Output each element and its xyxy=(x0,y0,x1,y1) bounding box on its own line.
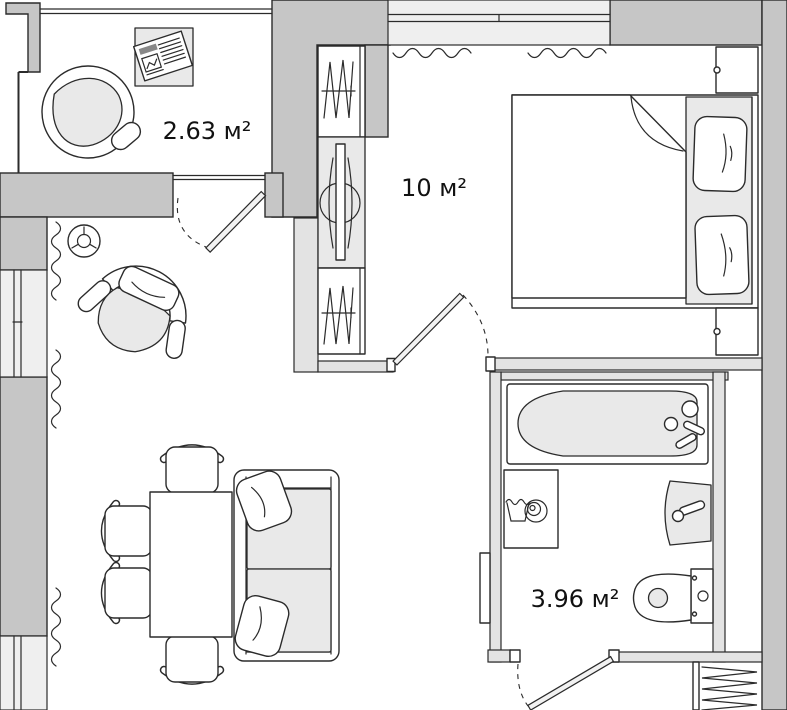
living-room-window-upper xyxy=(0,270,47,377)
wardrobe-bottom xyxy=(318,268,365,354)
wardrobe-top xyxy=(318,46,365,137)
wall-hall-bottom xyxy=(610,652,762,662)
wall-balcony-door-jamb xyxy=(265,173,283,217)
balcony: 2.63 м² xyxy=(32,28,252,168)
balcony-door xyxy=(177,192,265,253)
toilet xyxy=(634,569,714,623)
nightstand-bottom xyxy=(714,308,758,355)
washing-machine xyxy=(504,470,558,548)
bathroom: 3.96 м² xyxy=(504,384,713,623)
radiator-living-2 xyxy=(52,350,61,428)
floor-plan: 2.63 м² xyxy=(0,0,787,710)
built-in-closet xyxy=(702,667,757,710)
bathtub xyxy=(507,384,708,464)
dining-chair-top xyxy=(164,447,220,493)
bedroom-area-label: 10 м² xyxy=(401,174,467,202)
wall-bathroom-top xyxy=(487,358,762,370)
wall-bedroom-bottom-left xyxy=(318,361,393,372)
washbasin xyxy=(665,481,711,545)
wall-top-left-stub xyxy=(6,3,40,72)
wall-top-right xyxy=(610,0,762,45)
radiator-bedroom-2 xyxy=(528,49,606,58)
bedroom-door xyxy=(387,293,495,371)
bathroom-area-label: 3.96 м² xyxy=(531,585,620,613)
nightstand-top xyxy=(714,47,758,93)
wall-bathroom-right-partition xyxy=(713,372,725,662)
wall-left-mid xyxy=(0,377,47,636)
bed-pillow-top xyxy=(693,116,748,192)
dining-chair-bottom xyxy=(164,636,220,682)
balcony-area-label: 2.63 м² xyxy=(163,117,252,145)
radiator-living-3 xyxy=(52,588,61,666)
wall-bathroom-left xyxy=(490,372,501,662)
dining-table xyxy=(150,492,232,637)
bed-pillow-bottom xyxy=(695,215,750,295)
dining-chair-left-2 xyxy=(105,566,152,620)
dresser-with-mirror xyxy=(318,137,365,268)
bathroom-door xyxy=(510,650,619,710)
wall-bathroom-bottom-left xyxy=(488,650,510,662)
wall-bathroom-top-inner xyxy=(501,372,728,380)
wall-left-upper xyxy=(0,217,47,270)
wall-bedroom-pier xyxy=(365,45,388,137)
sofa xyxy=(233,468,339,661)
living-room-window-lower xyxy=(0,636,47,710)
wall-living-bedroom-divider xyxy=(294,218,318,372)
wall-closet-divider xyxy=(693,662,699,710)
hanging-chair xyxy=(32,56,145,169)
radiator-living-1 xyxy=(52,222,61,300)
armchair xyxy=(66,244,213,377)
open-door-leaf xyxy=(480,553,490,623)
dining-chair-left-1 xyxy=(105,504,152,558)
hallway xyxy=(702,667,757,710)
double-bed xyxy=(512,95,758,308)
bedroom-window xyxy=(388,0,610,45)
wall-right xyxy=(762,0,787,710)
wall-balcony-living xyxy=(0,173,173,217)
ventilation-symbol xyxy=(68,225,100,257)
radiator-bedroom-1 xyxy=(393,49,471,58)
